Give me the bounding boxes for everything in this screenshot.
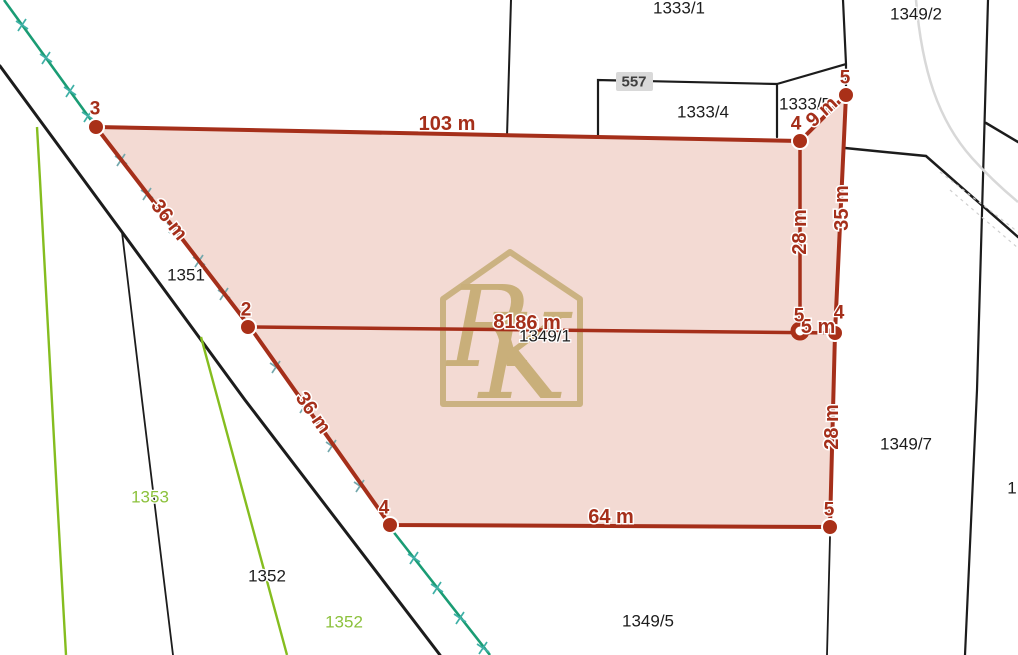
teal-line-lower — [392, 530, 490, 655]
parcel-line-below-vertex — [827, 537, 830, 655]
parcel-label-1333-1: 1333/1 — [653, 0, 705, 18]
measure-35m: 35 m — [831, 185, 853, 231]
measure-103m: 103 m — [419, 113, 476, 135]
green-line-west — [37, 127, 66, 655]
vertex-point-3 — [88, 119, 104, 135]
vertex-label-4-bottom: 4 — [379, 498, 390, 519]
parcel-label-557: 557 — [621, 74, 646, 91]
parcel-label-1333-4: 1333/4 — [677, 103, 729, 122]
vertex-point-5-bottom — [822, 519, 838, 535]
parcel-line-east-vertical — [965, 0, 988, 655]
vertex-point-4-bottom — [382, 517, 398, 533]
green-line-middle — [201, 337, 287, 655]
dotted-helper-lines — [940, 172, 1018, 248]
vertex-label-2: 2 — [241, 300, 252, 321]
cadastral-map-canvas[interactable]: R K 1333/1 1349/2 557 1333/4 1333/5 1351… — [0, 0, 1018, 655]
road-curve-lines — [916, 0, 1018, 248]
measure-5m: 5 m — [801, 316, 835, 338]
vertex-label-5-mid: 5 — [794, 306, 805, 327]
parcel-line-left-1333 — [507, 0, 511, 136]
measure-28m-upper: 28 m — [789, 209, 811, 255]
vertex-point-2 — [240, 319, 256, 335]
vertex-point-4-top — [792, 133, 808, 149]
parcel-line-northeast — [845, 148, 1018, 237]
measure-64m: 64 m — [588, 506, 634, 528]
parcel-label-1352: 1352 — [248, 567, 286, 586]
teal-line-upper — [4, 0, 96, 127]
cadastral-map-viewport[interactable]: R K 1333/1 1349/2 557 1333/4 1333/5 1351… — [0, 0, 1018, 655]
parcel-label-1353-green: 1353 — [131, 488, 169, 507]
parcel-label-1351: 1351 — [167, 266, 205, 285]
vertex-label-3: 3 — [90, 99, 101, 120]
vertex-label-5-bottom: 5 — [824, 500, 835, 521]
vertex-label-4-top: 4 — [791, 114, 802, 135]
inner-split-line — [122, 232, 173, 655]
parcel-line-east-stub — [986, 123, 1018, 142]
measure-28m-lower: 28 m — [821, 404, 843, 450]
vertex-label-4-mid: 4 — [834, 303, 845, 324]
parcel-label-1349-2: 1349/2 — [890, 5, 942, 24]
road-curve — [916, 0, 1018, 202]
watermark-initial-k: K — [477, 288, 573, 426]
vertex-point-5-top — [838, 87, 854, 103]
parcel-label-clipped-east: 1 — [1007, 479, 1016, 498]
parcel-label-1349-7: 1349/7 — [880, 435, 932, 454]
parcel-label-1349-5: 1349/5 — [622, 612, 674, 631]
parcel-label-1352-green: 1352 — [325, 613, 363, 632]
measure-86m: 86 m — [515, 312, 561, 334]
vertex-label-5-top: 5 — [840, 68, 851, 89]
